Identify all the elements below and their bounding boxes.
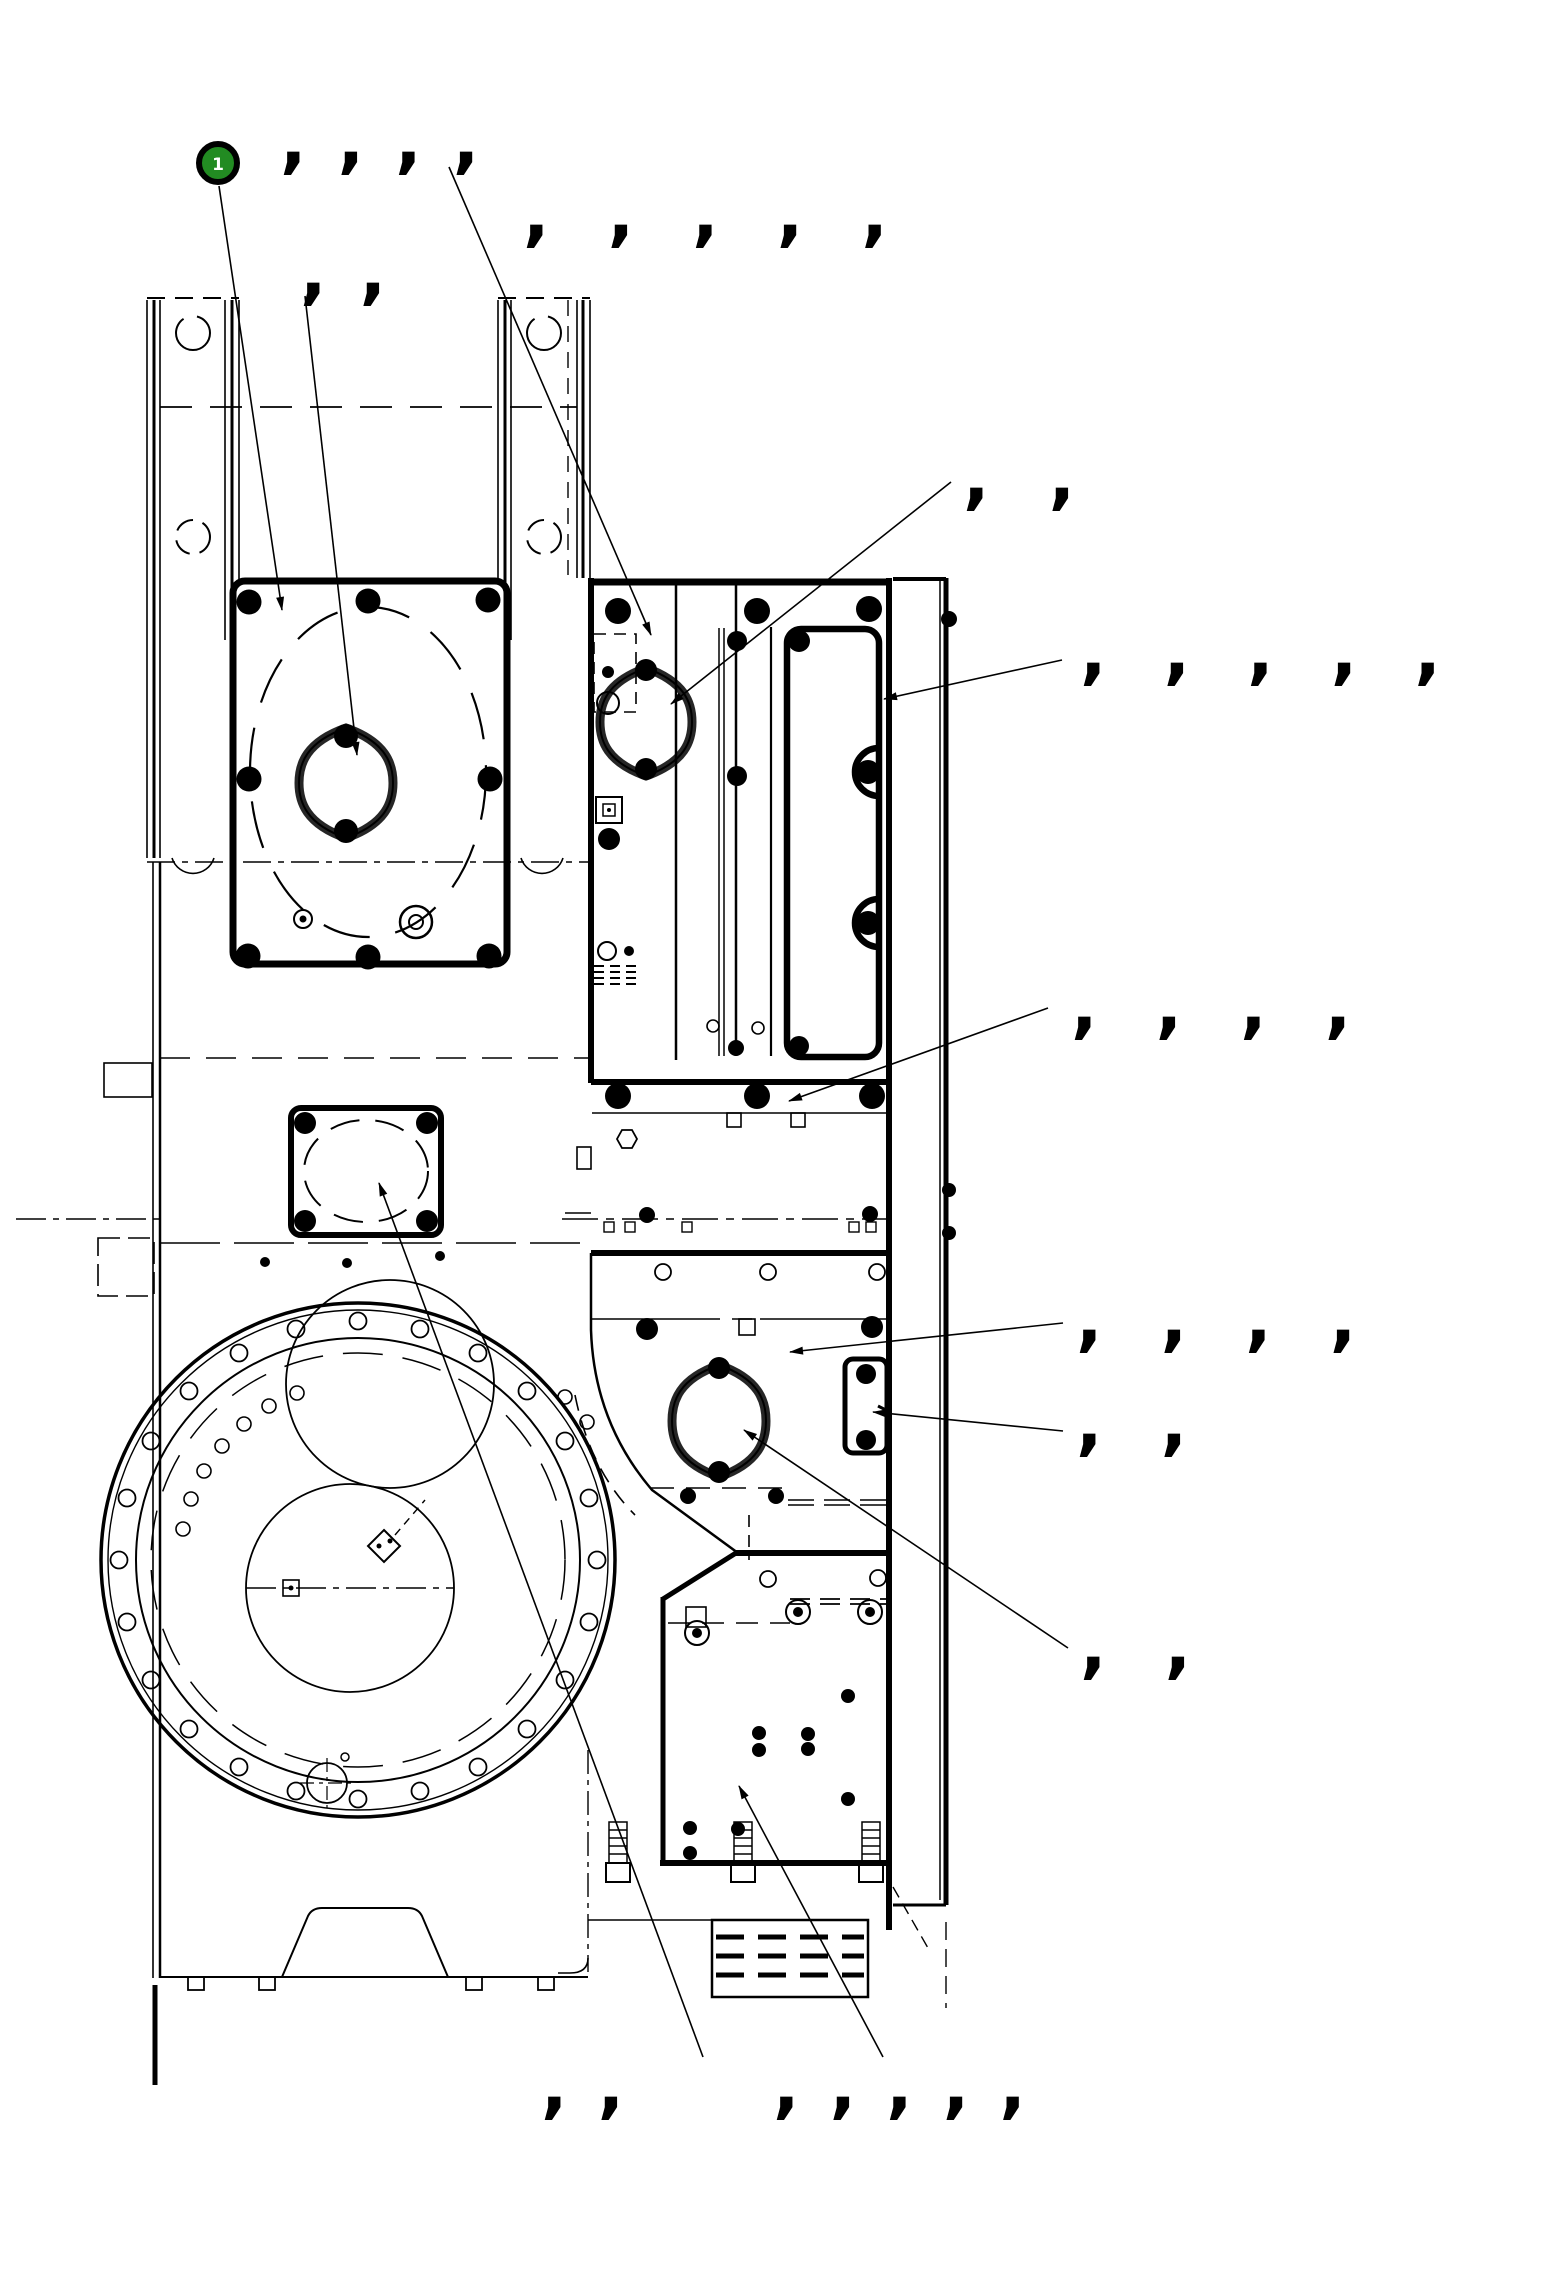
- lower-oval-opening: [672, 1357, 766, 1483]
- mid-rect-cover: [291, 1108, 441, 1235]
- assembly-drawing: 1: [0, 0, 1555, 2275]
- balloon-number: 1: [212, 155, 224, 175]
- callout-label-g8: ,,: [1076, 1388, 1245, 1458]
- ring-bolt-holes: [111, 1313, 606, 1808]
- plate-hex-bolts: [683, 1689, 855, 1860]
- upper-bore: [286, 1280, 494, 1488]
- rail-hidden-lines: [147, 407, 590, 862]
- left-oval-opening: [299, 724, 393, 843]
- right-tall-panel: [893, 578, 957, 2008]
- callout-label-g5: ,,,,,: [1080, 617, 1498, 687]
- callout-label-g6: ,,,,: [1071, 971, 1409, 1041]
- leader-lower-band: [790, 1323, 1063, 1352]
- large-right-cover: [787, 629, 880, 1057]
- callout-label-g11: ,,,,,: [773, 2051, 1056, 2121]
- mid-left-housing: [16, 862, 588, 2085]
- leader-left-oval: [305, 296, 357, 755]
- flywheel-ring: [101, 1280, 615, 1817]
- callout-label-g7: ,,,,: [1076, 1284, 1414, 1354]
- right-mounting-rail: [498, 298, 590, 873]
- small-side-plate: [845, 1359, 890, 1453]
- right-assembly-bottom-plate: [588, 1553, 888, 1997]
- leader-balloon-1: [219, 186, 282, 610]
- callout-label-g1: ,,,,: [280, 106, 510, 176]
- leader-lower-oval: [744, 1430, 1068, 1648]
- item-balloon[interactable]: 1: [199, 144, 237, 182]
- vent-box: [588, 1920, 868, 1997]
- callout-label-g10: ,,: [541, 2051, 654, 2121]
- left-mounting-rail: [147, 298, 239, 873]
- upper-right-oval-opening: [600, 659, 692, 780]
- diamond-marker: [368, 1500, 425, 1562]
- right-assembly-lower-band: [575, 1253, 890, 1560]
- inner-bolt-holes: [176, 1386, 594, 1536]
- cover-bolts: [236, 588, 503, 970]
- callout-label-g9: ,,: [1080, 1611, 1249, 1681]
- leader-side-plate: [873, 1412, 1063, 1431]
- technical-drawing-page: 1 ,,,,,,,,,,,,,,,,,,,,,,,,,,,,,,,,,,,,,: [0, 0, 1555, 2275]
- leader-rect-cover: [379, 1183, 703, 2057]
- callout-label-g2: ,,,,,: [523, 179, 946, 249]
- callout-label-g3: ,,: [300, 237, 419, 307]
- right-assembly-middle-band: [562, 1083, 888, 1253]
- housing-bottom-profile: [160, 1750, 588, 1990]
- leader-right-cover: [884, 660, 1062, 699]
- callout-label-g4: ,,: [963, 442, 1134, 512]
- left-cover-plate: [233, 581, 507, 970]
- leader-upper-oval: [671, 482, 951, 704]
